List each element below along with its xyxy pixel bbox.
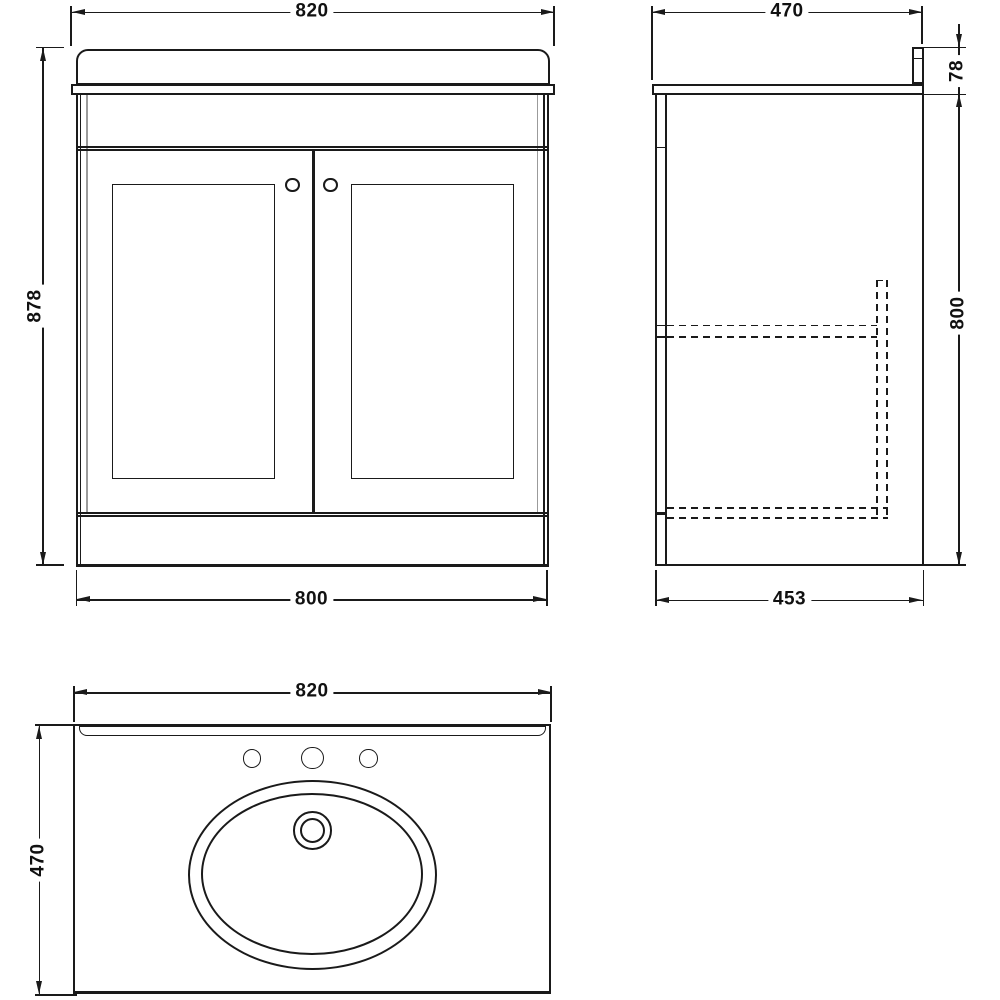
- arrow-right-icon: [909, 9, 922, 15]
- arrow-up-icon: [40, 48, 46, 61]
- side-upstand-height-label: 78: [947, 54, 968, 86]
- arrow-left-icon: [656, 597, 669, 603]
- cabinet-stile-right: [537, 95, 538, 513]
- arrow-down-icon: [956, 552, 962, 565]
- hidden-shelf-line-top: [667, 325, 877, 327]
- arrow-left-icon: [77, 596, 90, 602]
- cabinet-side-left: [76, 95, 78, 566]
- hidden-bottom-line-top: [667, 507, 888, 509]
- cabinet-side-left-inner: [80, 95, 81, 564]
- arrow-up-icon: [36, 726, 42, 739]
- tap-hole-right: [359, 749, 378, 768]
- arrow-left-icon: [652, 9, 665, 15]
- top-rail-line-upper: [76, 146, 549, 148]
- side-height-label: 800: [948, 291, 969, 334]
- side-depth-bottom-label: 453: [768, 590, 811, 611]
- hidden-back-panel-line-front: [876, 280, 878, 518]
- plan-top-extension-right: [550, 686, 552, 722]
- shelf-edge-tick-top: [656, 325, 668, 327]
- plan-back-edge-strip: [79, 726, 546, 736]
- arrow-right-icon: [541, 9, 554, 15]
- left-door-knob: [285, 178, 300, 193]
- front-width-top-label: 820: [290, 2, 333, 23]
- front-worktop-edge: [71, 84, 556, 96]
- front-upstand: [76, 49, 550, 85]
- side-door-top-joint: [655, 147, 667, 148]
- arrow-right-icon: [538, 689, 551, 695]
- left-door-panel: [112, 184, 275, 479]
- arrow-right-icon: [909, 597, 922, 603]
- plinth-line-upper: [76, 512, 549, 514]
- arrow-down-icon: [40, 552, 46, 565]
- shelf-edge-tick-bottom: [656, 336, 668, 338]
- plan-top-extension-left: [73, 686, 75, 722]
- side-top-extension-left: [651, 6, 653, 80]
- door-divider: [312, 150, 315, 512]
- front-top-extension-right: [553, 6, 555, 46]
- side-upstand: [912, 47, 924, 84]
- hidden-back-panel-cap: [876, 280, 888, 282]
- tap-hole-center: [301, 747, 323, 769]
- arrow-left-icon: [72, 9, 85, 15]
- plinth-line-lower: [76, 515, 549, 517]
- technical-drawing-canvas: 820 878: [0, 0, 1000, 1000]
- front-height-label: 878: [26, 284, 47, 327]
- arrow-right-icon: [533, 596, 546, 602]
- hidden-bottom-line-bottom: [667, 517, 888, 519]
- side-door-edge-outer: [655, 95, 657, 564]
- side-door-edge-inner: [665, 95, 667, 564]
- side-depth-top-label: 470: [765, 2, 808, 23]
- arrow-left-icon: [74, 689, 87, 695]
- front-top-extension-left: [70, 6, 72, 46]
- side-top-extension-right: [921, 6, 923, 44]
- side-worktop-slab: [652, 84, 924, 96]
- cabinet-bottom-edge: [76, 564, 549, 567]
- right-door-knob: [323, 178, 338, 193]
- side-door-bottom-joint: [655, 512, 667, 515]
- plan-depth-tick-bottom: [35, 994, 77, 996]
- arrow-down-icon: [36, 981, 42, 994]
- right-door-panel: [351, 184, 514, 479]
- hidden-shelf-line-bottom: [667, 336, 877, 338]
- plan-width-label: 820: [290, 682, 333, 703]
- front-width-bottom-label: 800: [290, 590, 333, 611]
- side-height-tick-bottom: [924, 564, 966, 566]
- side-upstand-detail-line: [912, 58, 924, 59]
- cabinet-stile-left: [86, 95, 87, 513]
- tap-hole-left: [243, 749, 262, 768]
- side-back-edge: [922, 95, 924, 565]
- side-bottom-edge: [655, 564, 924, 567]
- hidden-back-panel-line-rear: [886, 280, 888, 518]
- arrow-down-icon: [956, 34, 962, 47]
- plan-depth-label: 470: [29, 838, 50, 881]
- cabinet-side-right-inner: [543, 95, 544, 564]
- cabinet-side-right: [547, 95, 549, 566]
